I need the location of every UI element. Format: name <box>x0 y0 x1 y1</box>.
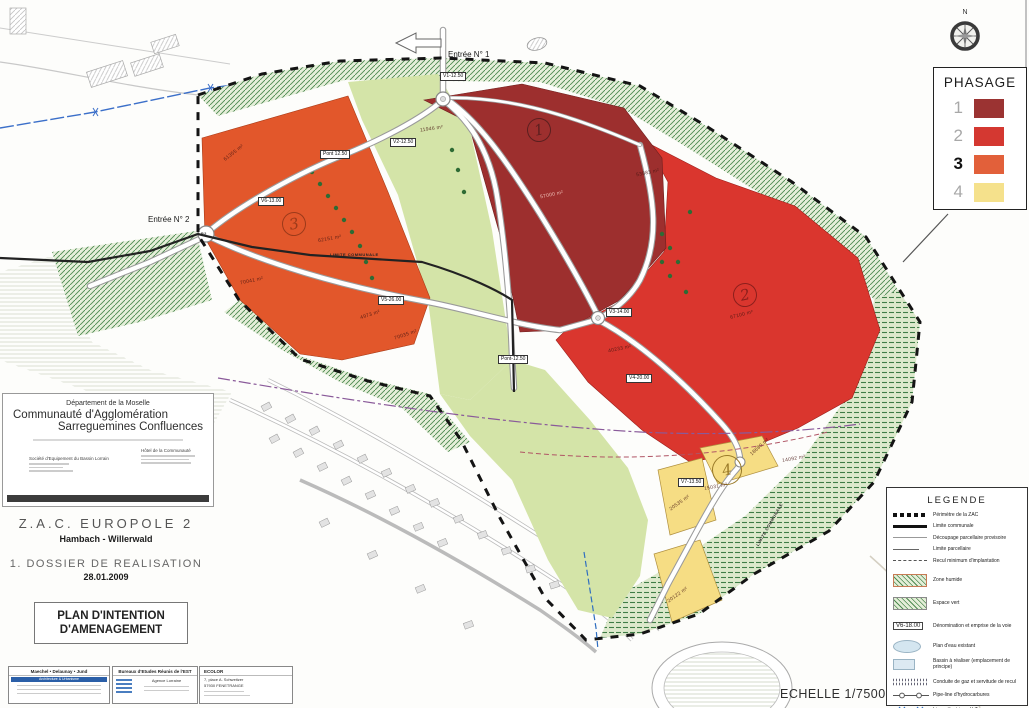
road-tag-v4: V4-20.00 <box>626 374 652 383</box>
phase-2-swatch <box>974 127 1004 146</box>
road-tag-v5: V5-26.00 <box>378 296 404 305</box>
bassin-symbol <box>893 659 933 670</box>
limite-communale-symbol <box>893 525 933 528</box>
berest-block: Bureaux d'Etudes Réunis de l'EST Agence … <box>112 666 198 704</box>
compass-rose: N <box>938 6 992 62</box>
phasage-row-1: 1 <box>949 98 1026 118</box>
phase-1-number: 1 <box>949 98 963 118</box>
plan-title-box: PLAN D'INTENTION D'AMENAGEMENT <box>34 602 188 644</box>
legend-item: Bassin à réaliser (emplacement de princi… <box>893 658 1023 670</box>
phase-3-swatch <box>974 155 1004 174</box>
project-name: Z.A.C. EUROPOLE 2 <box>0 516 212 531</box>
road-tag-v6: V6-13.00 <box>258 197 284 206</box>
legend-item: Plan d'eau existant <box>893 640 1023 653</box>
phase-3-number: 3 <box>949 154 963 174</box>
scale-label: ECHELLE 1/7500 <box>780 687 886 701</box>
road-tag-v3: V3-14.00 <box>606 308 632 317</box>
legend-item: Pipe-line d'hydrocarbures <box>893 692 1023 699</box>
road-tag-pont2: Pont-12.50 <box>498 355 528 364</box>
architects-names: Maechel • Delaunay • Jund <box>9 669 109 676</box>
phasage-panel: PHASAGE 1 2 3 4 <box>933 67 1027 210</box>
entrance-1-label: Entrée N° 1 <box>448 50 489 59</box>
decoupage-symbol <box>893 537 933 538</box>
roundabout-p2-label: P2 <box>201 231 207 236</box>
phasage-row-2: 2 <box>949 126 1026 146</box>
phasage-row-3: 3 <box>949 154 1026 174</box>
dossier-label: 1. DOSSIER DE REALISATION <box>0 558 212 570</box>
ecolor-address-2: 57930 FENETRANGE <box>200 683 292 688</box>
plan-eau-symbol <box>893 640 933 653</box>
zone-humide-symbol <box>893 574 933 587</box>
ecolor-address-1: 7, place A. Schweitzer <box>200 677 292 682</box>
agglomeration-label: Communauté d'Agglomération <box>13 409 213 421</box>
basin <box>652 642 792 708</box>
ecolor-block: ECOLOR 7, place A. Schweitzer 57930 FENE… <box>199 666 293 704</box>
road-tag-v7: V7-13.50 <box>678 478 704 487</box>
berest-name: Bureaux d'Etudes Réunis de l'EST <box>113 669 197 676</box>
ecolor-name: ECOLOR <box>200 669 292 676</box>
org-left-block: Société d'Equipement du Bassin Lorrain <box>29 456 124 472</box>
entrance-arrow-icon <box>396 33 441 53</box>
phase-1-swatch <box>974 99 1004 118</box>
divider-bar <box>7 495 209 502</box>
plan-sheet: Entrée N° 1 Entrée N° 2 V1-12.50 V2-12.5… <box>0 0 1029 708</box>
legend-item: Périmètre de la ZAC <box>893 512 1023 518</box>
phase-4-swatch <box>974 183 1004 202</box>
architects-block: Maechel • Delaunay • Jund Architecture &… <box>8 666 110 704</box>
plan-title-line1: PLAN D'INTENTION <box>57 609 165 623</box>
legend-item: Limite parcellaire <box>893 546 1023 552</box>
title-block: Département de la Moselle Communauté d'A… <box>2 393 214 507</box>
entrance-2-label: Entrée N° 2 <box>148 215 189 224</box>
limite-communale-label: LIMITE COMMUNALE <box>330 252 379 257</box>
phasage-title: PHASAGE <box>934 75 1026 90</box>
berest-agency: Agence Lorraine <box>136 678 197 683</box>
legend-item: Découpage parcellaire provisoire <box>893 535 1023 541</box>
zac-perimeter-symbol <box>893 513 933 517</box>
confluences-label: Sarreguemines Confluences <box>3 421 203 433</box>
pipeline-symbol <box>893 692 933 699</box>
road-tag-v1: V1-12.50 <box>440 72 466 81</box>
recul-symbol <box>893 560 933 561</box>
legend-item: Limite communale <box>893 523 1023 529</box>
fine-print <box>33 439 183 441</box>
phasage-row-4: 4 <box>949 182 1026 202</box>
road-name-symbol: V6-18.00 <box>893 622 933 630</box>
espace-vert-symbol <box>893 597 933 610</box>
legend-item: V6-18.00 Dénomination et emprise de la v… <box>893 622 1023 630</box>
gaz-symbol <box>893 678 933 686</box>
communes-label: Hambach - Willerwald <box>0 534 212 544</box>
legend-item: Espace vert <box>893 597 1023 610</box>
legend-panel: LEGENDE Périmètre de la ZAC Limite commu… <box>886 487 1028 706</box>
legend-item: Recul minimum d'implantation <box>893 558 1023 564</box>
department-label: Département de la Moselle <box>3 400 213 407</box>
phase-4-number: 4 <box>949 182 963 202</box>
legend-item: Conduite de gaz et servitude de recul <box>893 678 1023 686</box>
project-titles: Z.A.C. EUROPOLE 2 Hambach - Willerwald 1… <box>0 516 212 582</box>
compass-north-label: N <box>962 9 967 16</box>
phase-2-number: 2 <box>949 126 963 146</box>
road-tag-pont1: Pont 12.50 <box>320 150 350 159</box>
legend-item: Zone humide <box>893 574 1023 587</box>
legend-title: LEGENDE <box>887 495 1027 506</box>
date-label: 28.01.2009 <box>0 572 212 582</box>
architects-subtitle: Architecture & Urbanisme <box>11 677 107 682</box>
plan-title-line2: D'AMENAGEMENT <box>60 623 162 637</box>
org-right-block: Hôtel de la Communauté <box>141 448 209 464</box>
road-tag-v2: V2-12.50 <box>390 138 416 147</box>
berest-logo <box>116 677 136 693</box>
limite-parcellaire-symbol <box>893 549 933 550</box>
